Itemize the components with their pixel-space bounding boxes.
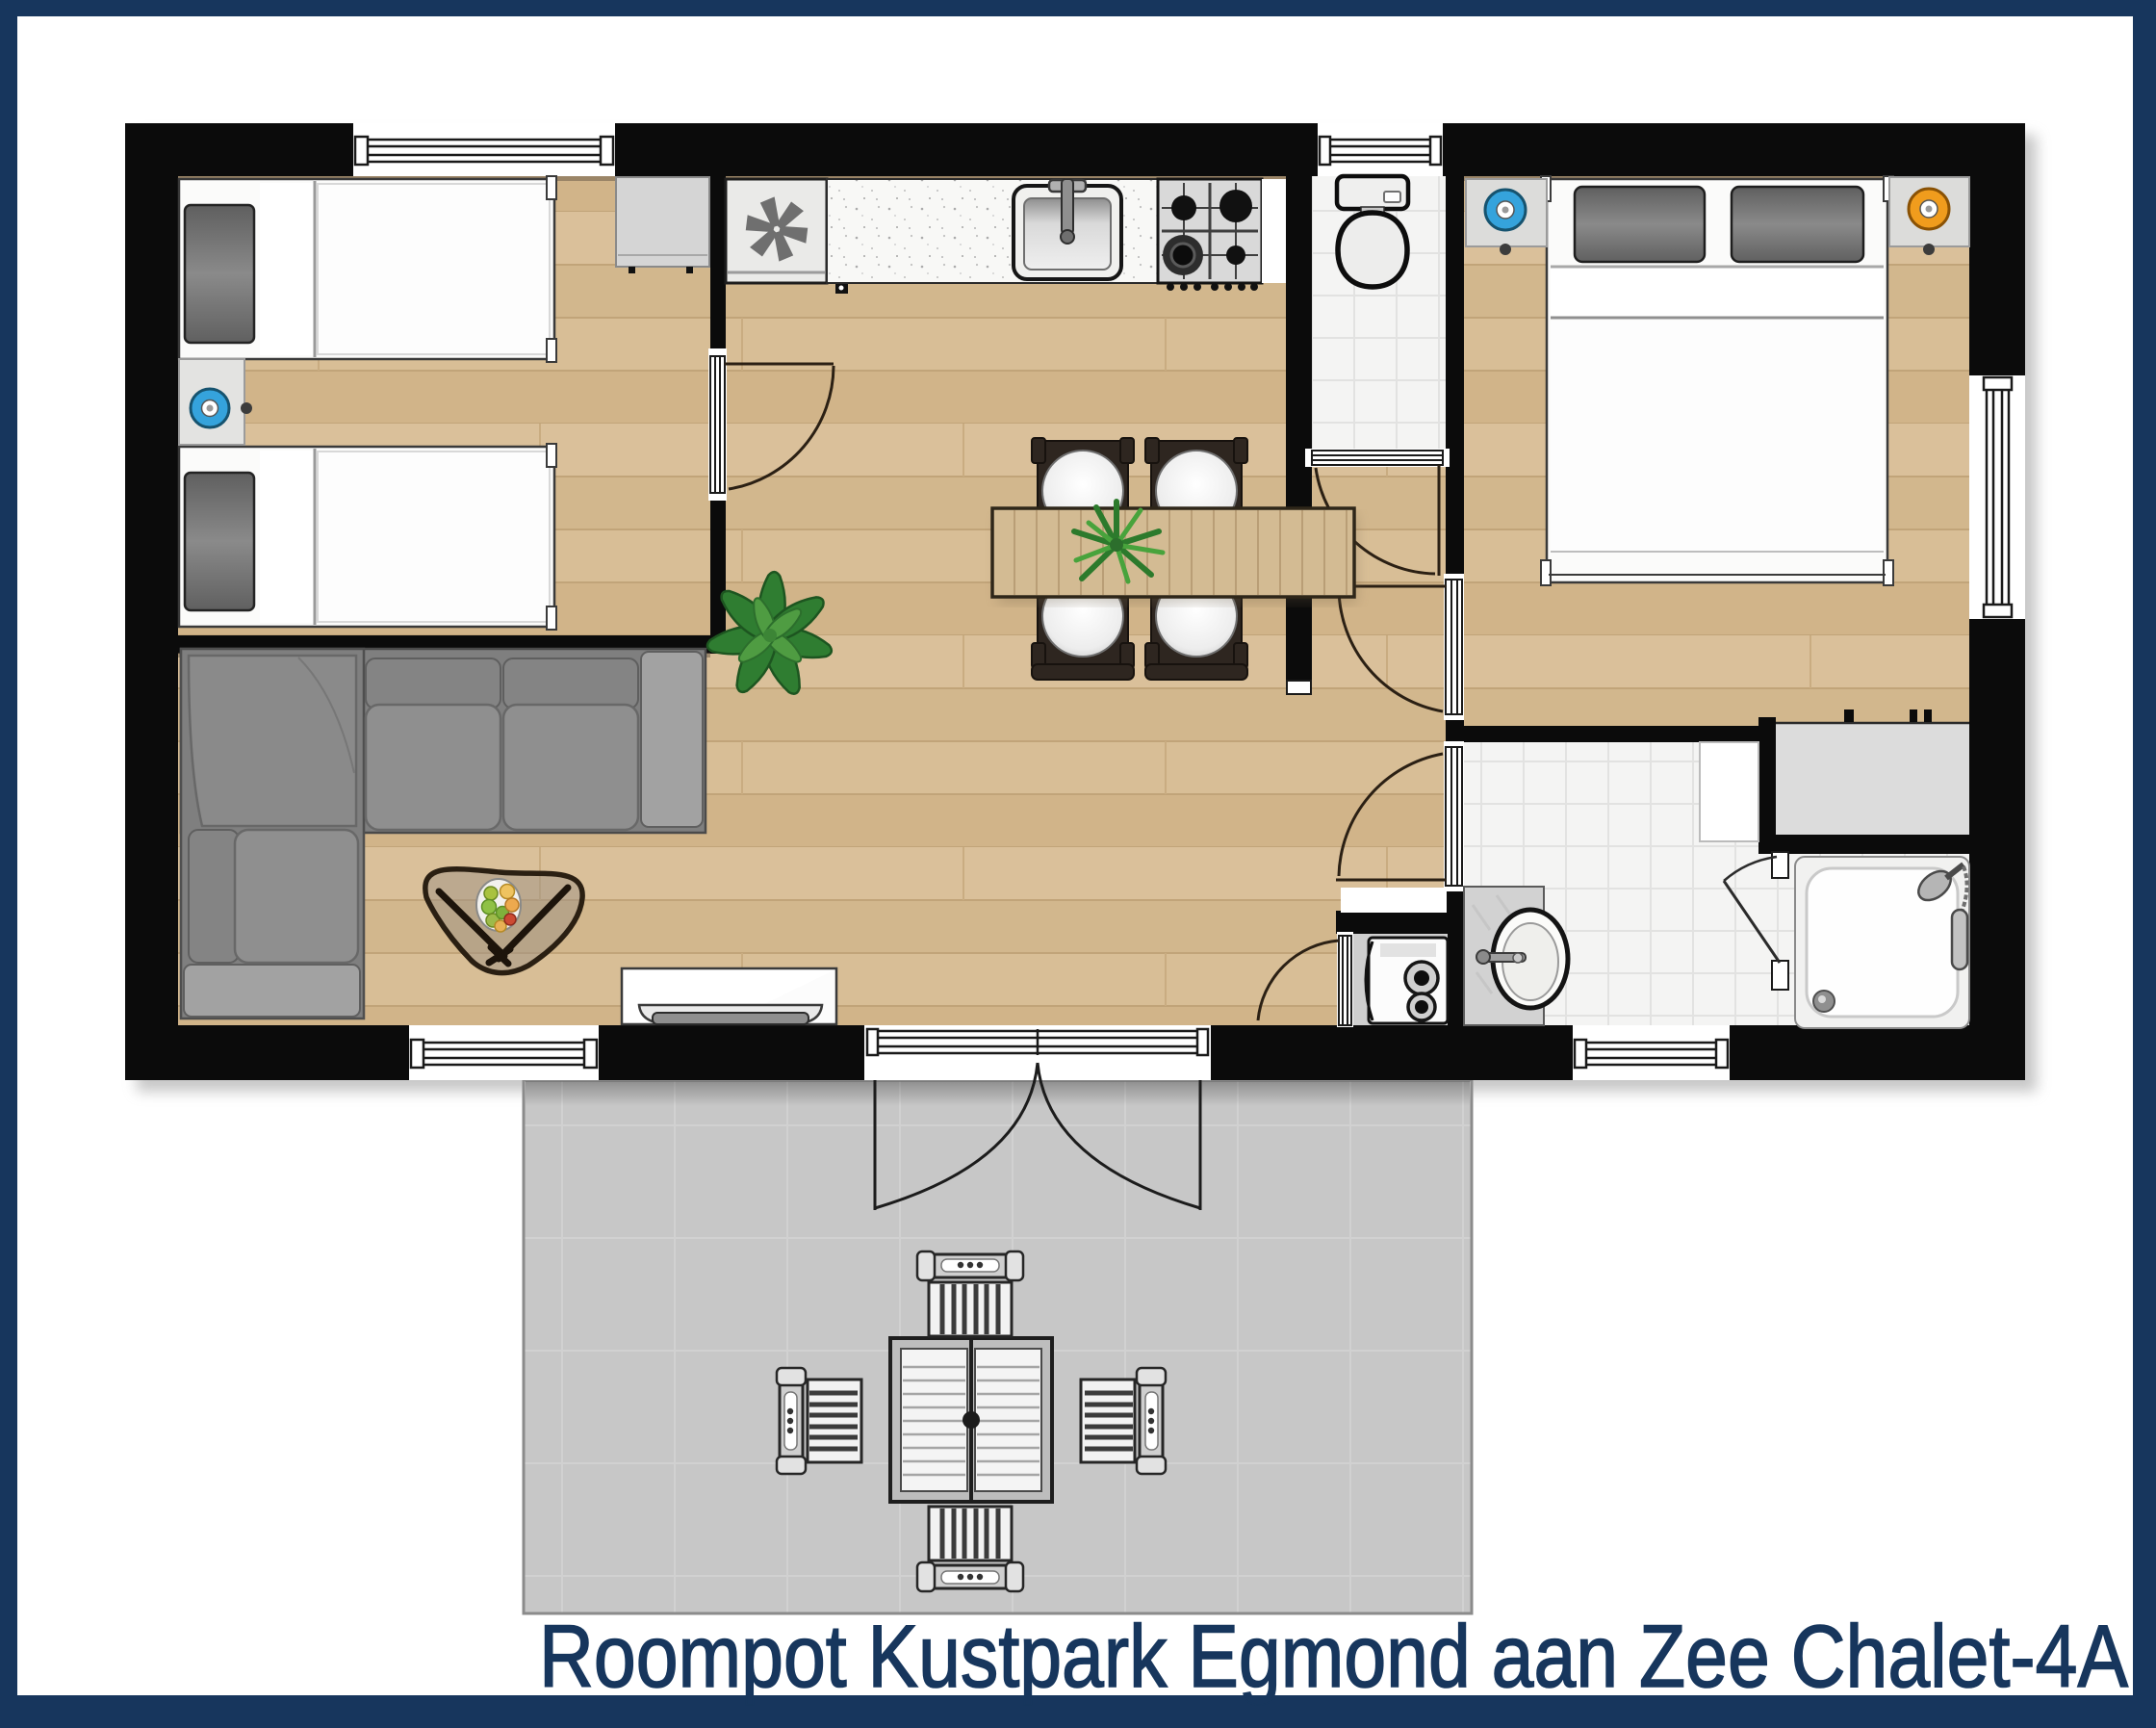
svg-text:Roompot Kustpark Egmond aan Ze: Roompot Kustpark Egmond aan Zee Chalet-4… [539,1608,2129,1706]
